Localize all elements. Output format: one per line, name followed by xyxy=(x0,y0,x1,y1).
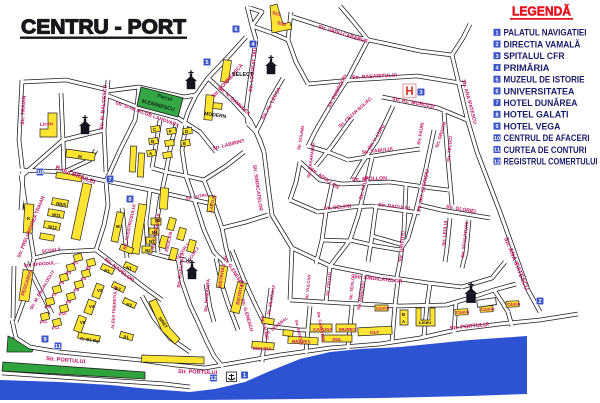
svg-text:V5: V5 xyxy=(80,320,86,325)
svg-text:Cămin: Cămin xyxy=(481,306,495,312)
svg-text:MUZEUL DE ISTORIE: MUZEUL DE ISTORIE xyxy=(504,75,585,86)
svg-text:HOTEL VEGA: HOTEL VEGA xyxy=(504,122,561,133)
svg-text:E: E xyxy=(183,141,186,146)
svg-text:M: M xyxy=(116,224,120,229)
svg-text:SPITALUL CFR: SPITALUL CFR xyxy=(504,51,565,62)
svg-text:N3: N3 xyxy=(149,239,155,244)
svg-text:SELECT: SELECT xyxy=(232,72,254,78)
svg-text:B: B xyxy=(151,139,154,144)
svg-text:A: A xyxy=(402,319,405,324)
svg-text:CENTRU - PORT: CENTRU - PORT xyxy=(21,16,186,39)
svg-text:CENTRUL DE AFACERI: CENTRUL DE AFACERI xyxy=(504,133,590,144)
svg-text:12: 12 xyxy=(494,159,500,165)
svg-text:Cămin: Cămin xyxy=(456,309,470,315)
svg-text:2: 2 xyxy=(495,42,498,48)
svg-text:11: 11 xyxy=(55,344,62,350)
svg-text:K: K xyxy=(27,216,31,222)
svg-text:5: 5 xyxy=(495,77,498,83)
svg-text:8: 8 xyxy=(495,112,498,118)
svg-text:DIRECTIA VAMALĂ: DIRECTIA VAMALĂ xyxy=(504,39,581,50)
svg-text:Liceu: Liceu xyxy=(40,121,54,128)
svg-text:JIUL: JIUL xyxy=(332,337,342,342)
svg-text:7: 7 xyxy=(495,101,498,107)
svg-text:2: 2 xyxy=(538,299,541,305)
svg-text:7: 7 xyxy=(108,177,111,183)
svg-text:F: F xyxy=(169,129,172,134)
svg-text:Liceu: Liceu xyxy=(419,320,431,325)
svg-text:UNIVERSITATEA: UNIVERSITATEA xyxy=(504,86,575,97)
svg-text:V3: V3 xyxy=(97,288,103,293)
svg-text:L: L xyxy=(210,202,213,207)
svg-text:3: 3 xyxy=(495,54,498,60)
svg-text:6: 6 xyxy=(495,89,498,95)
svg-text:Cămin: Cămin xyxy=(376,305,390,311)
svg-text:REGISTRUL COMERTULUI: REGISTRUL COMERTULUI xyxy=(504,157,598,168)
svg-text:PALATUL NAVIGATIEI: PALATUL NAVIGATIEI xyxy=(504,28,587,39)
svg-text:LEGENDĂ: LEGENDĂ xyxy=(512,4,572,19)
svg-text:1: 1 xyxy=(495,30,498,36)
svg-text:V4: V4 xyxy=(89,304,95,309)
svg-text:11: 11 xyxy=(494,148,500,154)
svg-text:10: 10 xyxy=(37,170,43,176)
svg-text:HOTEL GALATI: HOTEL GALATI xyxy=(504,110,569,121)
svg-text:9: 9 xyxy=(495,124,498,130)
svg-text:MURES: MURES xyxy=(339,327,357,333)
svg-text:PRIMĂRIA: PRIMĂRIA xyxy=(504,63,550,74)
svg-text:D: D xyxy=(185,129,188,134)
svg-text:12: 12 xyxy=(210,376,216,382)
svg-text:CURTEA DE CONTURI: CURTEA DE CONTURI xyxy=(504,145,587,156)
svg-text:Cămin: Cămin xyxy=(507,301,521,307)
svg-text:N5: N5 xyxy=(155,218,161,223)
svg-text:OLT: OLT xyxy=(370,330,379,336)
svg-text:HA: HA xyxy=(186,258,192,263)
svg-text:N4: N4 xyxy=(152,230,158,235)
svg-text:B: B xyxy=(402,312,405,317)
svg-text:N2: N2 xyxy=(145,248,151,253)
svg-text:10: 10 xyxy=(494,136,500,142)
svg-text:HOTEL DUNĂREA: HOTEL DUNĂREA xyxy=(504,98,578,109)
svg-text:H: H xyxy=(405,86,413,98)
svg-text:MALINA: MALINA xyxy=(253,346,272,353)
